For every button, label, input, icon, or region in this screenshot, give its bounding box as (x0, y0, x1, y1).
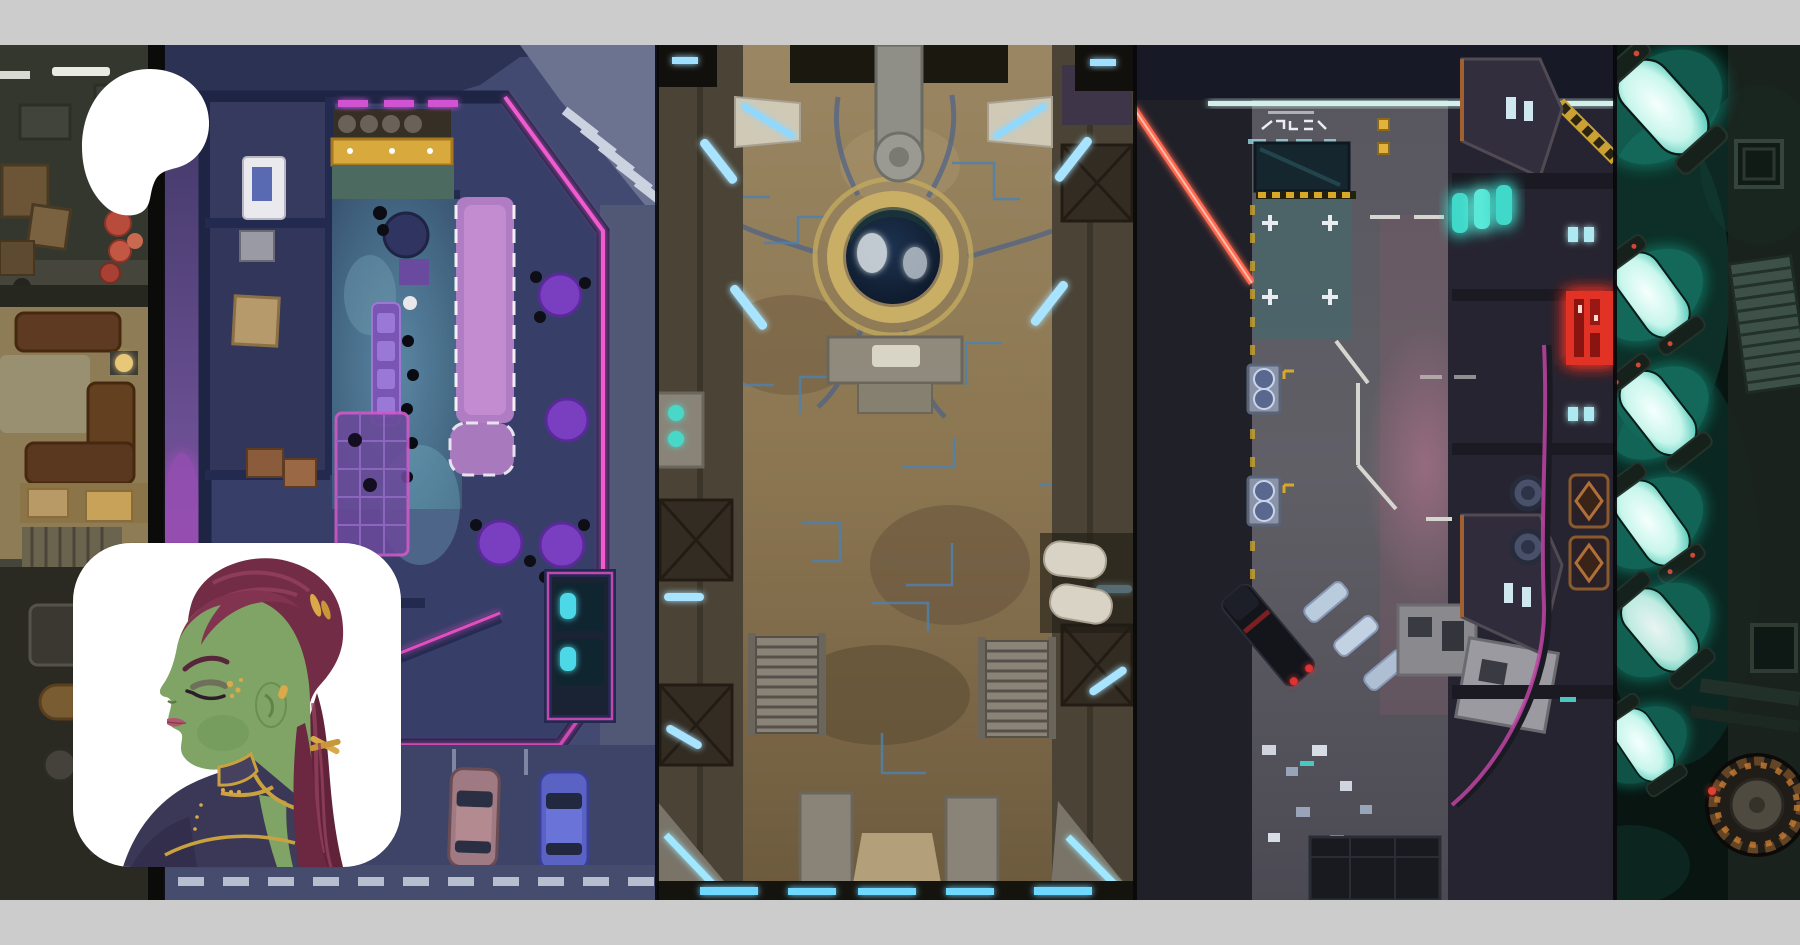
creator-avatar[interactable] (73, 543, 401, 867)
patreon-logo[interactable] (80, 68, 210, 218)
creator-avatar-portrait (73, 543, 401, 867)
patreon-logo-glyph (80, 68, 210, 218)
banner-panel-temple (657, 45, 1135, 900)
banner-panel-street (1133, 45, 1621, 900)
page-background (0, 0, 1800, 945)
patreon-logo-blob (82, 69, 209, 215)
